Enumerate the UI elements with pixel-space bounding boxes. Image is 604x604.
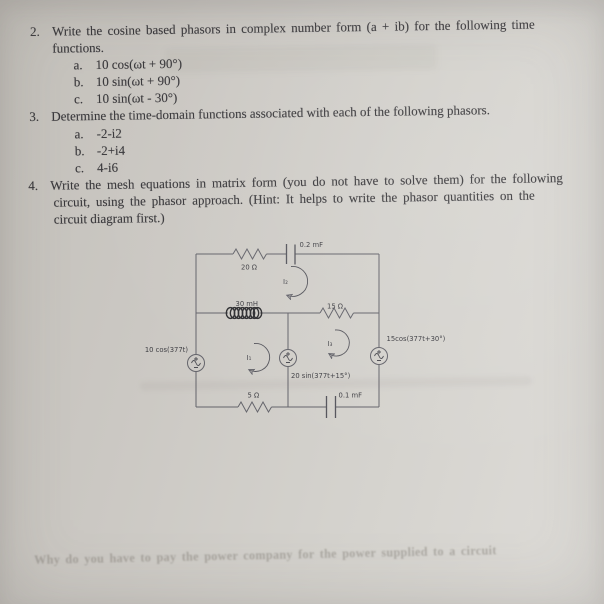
- source-left-label: 10 cos(377t): [145, 346, 189, 354]
- mesh-arrow-i1: [250, 343, 270, 371]
- mesh-arrow-i3: [330, 330, 350, 356]
- resistor-20ohm-label: 20 Ω: [241, 264, 257, 272]
- source-middle-label: 20 sin(377t+15°): [291, 372, 351, 380]
- capacitor-0p2mf: [287, 244, 296, 265]
- source-right-label: 15cos(377t+30°): [387, 335, 446, 343]
- capacitor-0p1mf: [327, 396, 336, 418]
- capacitor-0p1mf-label: 0.1 mF: [339, 392, 363, 400]
- mesh-current-i2-label: I₂: [283, 278, 288, 286]
- source-middle-icon: [280, 350, 297, 367]
- mesh-current-i1-label: I₁: [247, 354, 252, 362]
- resistor-5ohm-label: 5 Ω: [248, 392, 260, 400]
- capacitor-0p2mf-label: 0.2 mF: [300, 241, 324, 249]
- inductor-30mh: [226, 308, 261, 319]
- resistor-5ohm: [238, 402, 272, 412]
- source-left-icon: [188, 355, 205, 372]
- inductor-30mh-label: 30 mH: [236, 300, 259, 308]
- circuit-diagram: 0.2 mF 20 Ω 30 mH 15 Ω 5 Ω 0.1 mF 10 cos…: [0, 0, 604, 604]
- resistor-15ohm-label: 15 Ω: [327, 303, 343, 311]
- mesh-current-i3-label: I₃: [328, 340, 333, 348]
- source-right-icon: [371, 348, 388, 365]
- mesh-arrow-i2: [288, 266, 308, 296]
- resistor-20ohm: [233, 249, 267, 259]
